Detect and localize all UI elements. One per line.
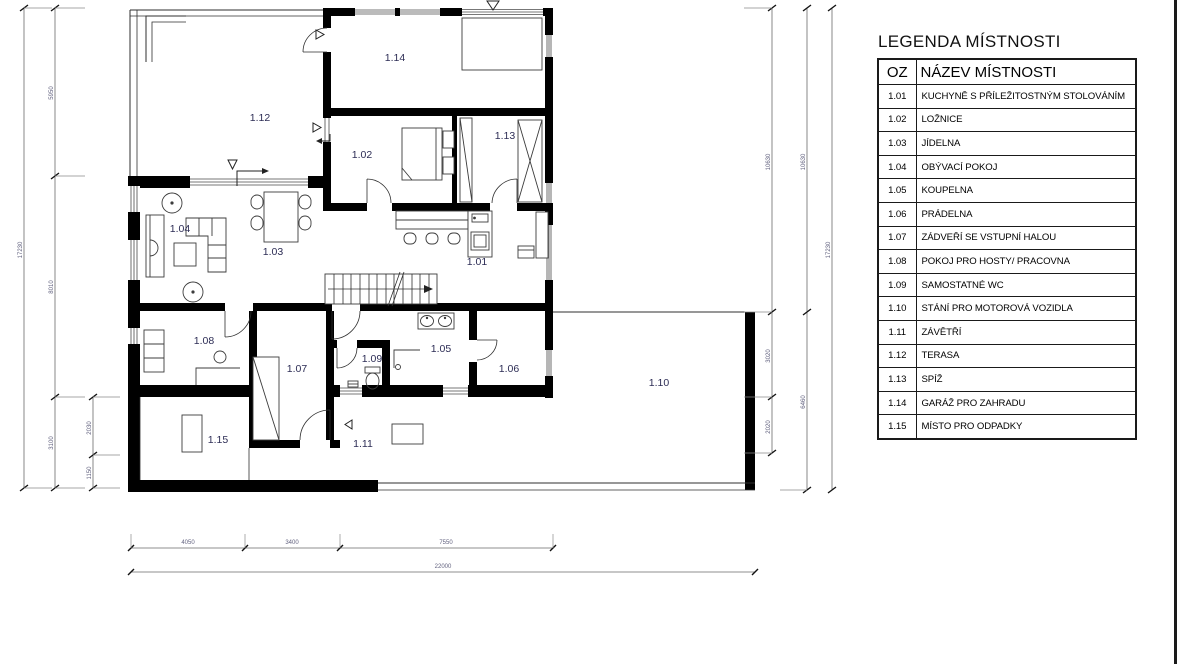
- legend-title: LEGENDA MÍSTNOSTI: [878, 32, 1135, 52]
- room-legend: LEGENDA MÍSTNOSTI OZ NÁZEV MÍSTNOSTI 1.0…: [877, 32, 1135, 440]
- legend-row: 1.14 GARÁŽ PRO ZAHRADU: [878, 391, 1136, 415]
- furniture-guest-room: [144, 330, 240, 385]
- legend-room-code: 1.11: [878, 320, 916, 344]
- legend-row: 1.08 POKOJ PRO HOSTY/ PRACOVNA: [878, 250, 1136, 274]
- legend-room-name: KOUPELNA: [916, 179, 1136, 203]
- furniture-living-room: [146, 193, 226, 302]
- furniture-kitchen: [396, 211, 548, 258]
- room-label-1-03: 1.03: [263, 246, 284, 258]
- legend-room-code: 1.02: [878, 108, 916, 132]
- dimension-lines-right: 10630 3020 2020 10630 6460 17230: [744, 5, 836, 493]
- carport-outline: [140, 312, 755, 490]
- dim-bottom-a: 4050: [181, 540, 195, 546]
- legend-room-code: 1.07: [878, 226, 916, 250]
- room-label-1-14: 1.14: [385, 52, 406, 64]
- legend-table: OZ NÁZEV MÍSTNOSTI 1.01 KUCHYNĚ S PŘÍLEŽ…: [877, 58, 1137, 440]
- room-label-1-06: 1.06: [499, 363, 520, 375]
- legend-room-name: POKOJ PRO HOSTY/ PRACOVNA: [916, 250, 1136, 274]
- furniture-waste-bin: [182, 415, 202, 452]
- room-label-1-12: 1.12: [250, 112, 271, 124]
- legend-room-code: 1.10: [878, 297, 916, 321]
- room-label-1-08: 1.08: [194, 335, 215, 347]
- dim-right-b-low: 6460: [801, 395, 807, 409]
- legend-room-name: PRÁDELNA: [916, 202, 1136, 226]
- dim-left-low: 3100: [49, 436, 55, 450]
- legend-row: 1.01 KUCHYNĚ S PŘÍLEŽITOSTNÝM STOLOVÁNÍM: [878, 85, 1136, 109]
- legend-room-name: ZÁDVEŘÍ SE VSTUPNÍ HALOU: [916, 226, 1136, 250]
- legend-col-name: NÁZEV MÍSTNOSTI: [916, 59, 1136, 85]
- legend-room-name: GARÁŽ PRO ZAHRADU: [916, 391, 1136, 415]
- dimension-lines-left: 17230 5950 8010 3100 2030 1150: [18, 5, 120, 491]
- legend-room-name: SAMOSTATNÉ WC: [916, 273, 1136, 297]
- dim-left-inner-a: 2030: [87, 421, 93, 435]
- legend-room-name: KUCHYNĚ S PŘÍLEŽITOSTNÝM STOLOVÁNÍM: [916, 85, 1136, 109]
- legend-room-name: MÍSTO PRO ODPADKY: [916, 415, 1136, 439]
- terrace-door-marker: [228, 160, 237, 169]
- dim-left-inner-b: 1150: [87, 466, 93, 480]
- room-label-1-11: 1.11: [353, 438, 373, 450]
- room-label-1-07: 1.07: [287, 363, 308, 375]
- legend-row: 1.04 OBÝVACÍ POKOJ: [878, 155, 1136, 179]
- legend-col-oz: OZ: [878, 59, 916, 85]
- legend-row: 1.10 STÁNÍ PRO MOTOROVÁ VOZIDLA: [878, 297, 1136, 321]
- legend-room-name: LOŽNICE: [916, 108, 1136, 132]
- room-label-1-02: 1.02: [352, 149, 373, 161]
- legend-room-code: 1.15: [878, 415, 916, 439]
- legend-row: 1.09 SAMOSTATNÉ WC: [878, 273, 1136, 297]
- legend-room-code: 1.05: [878, 179, 916, 203]
- legend-header-row: OZ NÁZEV MÍSTNOSTI: [878, 59, 1136, 85]
- dim-bottom-c: 7550: [439, 540, 453, 546]
- dim-left-mid: 8010: [49, 280, 55, 294]
- dim-right-a-top: 10630: [766, 153, 772, 170]
- entry-direction-marker: [345, 420, 352, 429]
- dim-left-top: 5950: [49, 86, 55, 100]
- legend-row: 1.11 ZÁVĚTŘÍ: [878, 320, 1136, 344]
- legend-room-code: 1.12: [878, 344, 916, 368]
- dimension-lines-bottom: 4050 3400 7550 22000: [128, 534, 758, 575]
- dim-right-a-mid: 3020: [766, 349, 772, 363]
- legend-room-code: 1.03: [878, 132, 916, 156]
- legend-room-name: ZÁVĚTŘÍ: [916, 320, 1136, 344]
- legend-room-code: 1.14: [878, 391, 916, 415]
- stairs: [325, 272, 437, 306]
- room-label-1-01: 1.01: [467, 256, 488, 268]
- room-label-1-10: 1.10: [649, 377, 670, 389]
- legend-room-code: 1.06: [878, 202, 916, 226]
- legend-row: 1.03 JÍDELNA: [878, 132, 1136, 156]
- legend-room-code: 1.09: [878, 273, 916, 297]
- legend-row: 1.07 ZÁDVEŘÍ SE VSTUPNÍ HALOU: [878, 226, 1136, 250]
- terrace-outline: [130, 10, 323, 176]
- bedroom-terrace-marker: [313, 123, 321, 132]
- legend-room-code: 1.13: [878, 368, 916, 392]
- legend-room-code: 1.08: [878, 250, 916, 274]
- room-label-1-05: 1.05: [431, 343, 452, 355]
- legend-row: 1.05 KOUPELNA: [878, 179, 1136, 203]
- furniture-dining: [251, 192, 311, 242]
- furniture-doormat: [392, 424, 423, 444]
- legend-row: 1.15 MÍSTO PRO ODPADKY: [878, 415, 1136, 439]
- legend-room-name: SPÍŽ: [916, 368, 1136, 392]
- dim-left-total: 17230: [18, 241, 24, 258]
- legend-row: 1.12 TERASA: [878, 344, 1136, 368]
- sheet-border-line: [1174, 0, 1177, 664]
- walls: [128, 8, 755, 492]
- legend-row: 1.13 SPÍŽ: [878, 368, 1136, 392]
- room-label-1-04: 1.04: [170, 223, 191, 235]
- legend-row: 1.06 PRÁDELNA: [878, 202, 1136, 226]
- furniture-garage: [462, 18, 542, 70]
- garage-door-marker: [316, 30, 324, 39]
- legend-room-name: TERASA: [916, 344, 1136, 368]
- dim-bottom-total: 22000: [435, 564, 452, 570]
- legend-room-code: 1.01: [878, 85, 916, 109]
- legend-room-code: 1.04: [878, 155, 916, 179]
- furniture-bathroom: [394, 313, 454, 370]
- room-label-1-15: 1.15: [208, 434, 229, 446]
- dim-right-b-top: 10630: [801, 153, 807, 170]
- dim-bottom-b: 3400: [285, 540, 299, 546]
- legend-room-name: JÍDELNA: [916, 132, 1136, 156]
- legend-room-name: OBÝVACÍ POKOJ: [916, 155, 1136, 179]
- legend-room-name: STÁNÍ PRO MOTOROVÁ VOZIDLA: [916, 297, 1136, 321]
- dim-right-a-low: 2020: [766, 420, 772, 434]
- floorplan-sheet: 1.01 1.02 1.03 1.04 1.05 1.06 1.07 1.08 …: [0, 0, 1180, 664]
- furniture-hall-wardrobe: [253, 357, 279, 440]
- room-label-1-13: 1.13: [495, 130, 516, 142]
- dim-right-total: 17230: [826, 241, 832, 258]
- furniture-bedroom: [402, 128, 454, 180]
- room-label-1-09: 1.09: [362, 353, 383, 365]
- legend-row: 1.02 LOŽNICE: [878, 108, 1136, 132]
